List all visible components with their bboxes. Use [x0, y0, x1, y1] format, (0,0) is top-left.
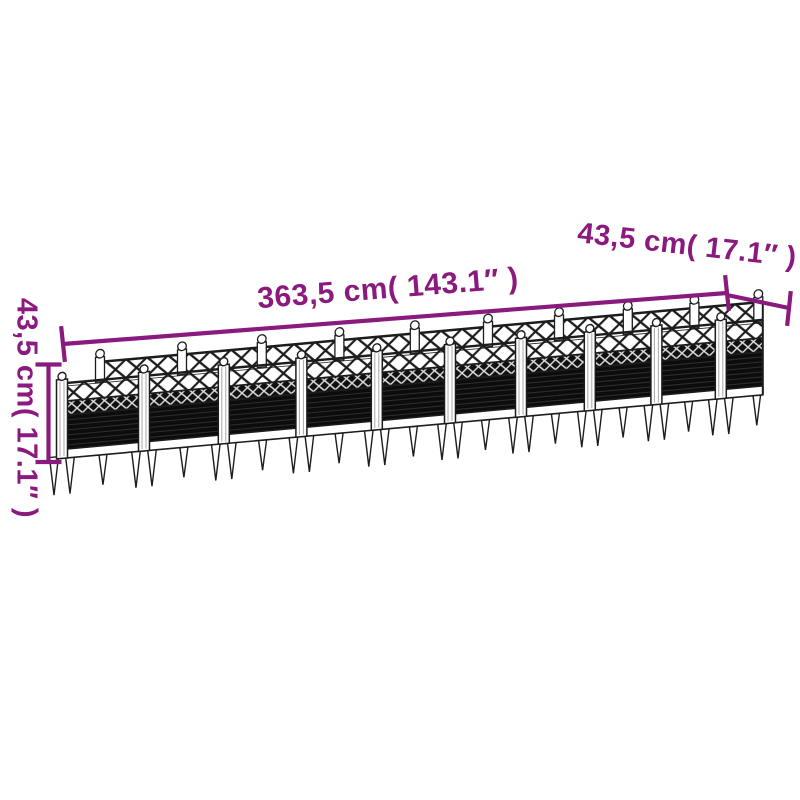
planter-illustration: [50, 289, 763, 495]
planter-line-art: [0, 0, 800, 800]
product-dimension-image: 363,5 cm( 143.1″ ) 43,5 cm( 17.1″ ) 43,5…: [0, 0, 800, 800]
height-dimension-label: 43,5 cm( 17.1″ ): [10, 298, 43, 518]
